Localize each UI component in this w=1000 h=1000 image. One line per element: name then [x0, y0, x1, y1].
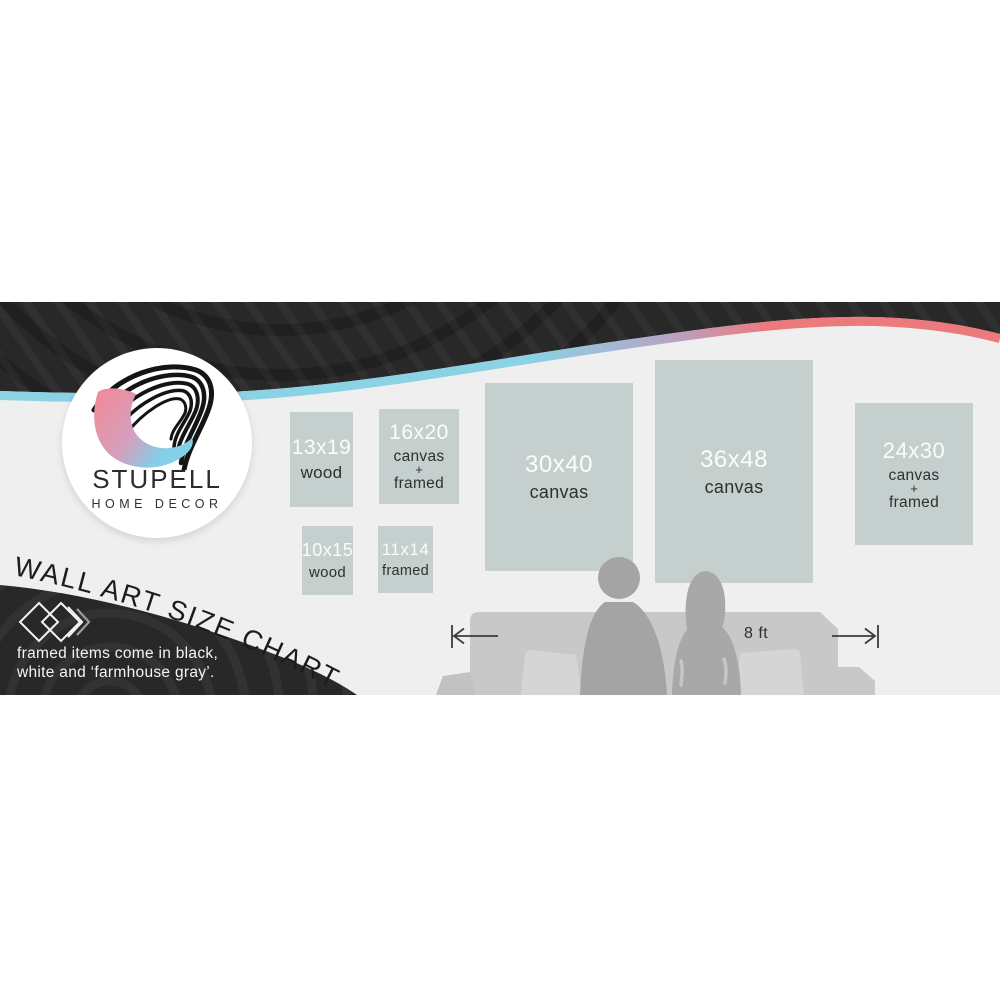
plus-label: +	[910, 484, 918, 494]
size-box-10x15: 10x15 wood	[302, 526, 353, 595]
size-box-16x20: 16x20 canvas + framed	[379, 409, 459, 504]
size-box-11x14: 11x14 framed	[378, 526, 433, 593]
material-label: canvas	[530, 482, 589, 503]
plus-label: +	[415, 465, 423, 475]
couch-cushion	[521, 650, 582, 695]
material-label: framed	[394, 475, 444, 492]
size-label: 13x19	[292, 436, 352, 460]
framed-note-line1: framed items come in black,	[17, 644, 218, 663]
couch-cushion	[736, 649, 804, 695]
size-label: 16x20	[389, 421, 449, 445]
material-label: framed	[889, 494, 939, 511]
couch-left-armrest	[436, 672, 476, 695]
right-arrow-icon	[832, 625, 878, 648]
double-diamond-icon	[16, 599, 94, 645]
material-label: wood	[301, 463, 343, 483]
framed-note: framed items come in black, white and ‘f…	[17, 644, 218, 682]
size-label: 11x14	[382, 540, 430, 560]
size-box-13x19: 13x19 wood	[290, 412, 353, 507]
measurement-label: 8 ft	[744, 625, 768, 643]
product-image: STUPELL HOME DECOR WALL ART SIZE CHART f…	[0, 0, 1000, 1000]
size-label: 36x48	[700, 446, 768, 474]
size-box-36x48: 36x48 canvas	[655, 360, 813, 583]
material-label: wood	[309, 564, 346, 581]
size-label: 10x15	[302, 540, 354, 561]
size-label: 24x30	[883, 438, 945, 464]
framed-note-line2: white and ‘farmhouse gray’.	[17, 663, 218, 682]
material-label: canvas	[705, 477, 764, 498]
size-box-30x40: 30x40 canvas	[485, 383, 633, 571]
couch-scene	[430, 555, 910, 695]
size-label: 30x40	[525, 451, 593, 479]
size-box-24x30: 24x30 canvas + framed	[855, 403, 973, 545]
material-label: framed	[382, 563, 429, 579]
